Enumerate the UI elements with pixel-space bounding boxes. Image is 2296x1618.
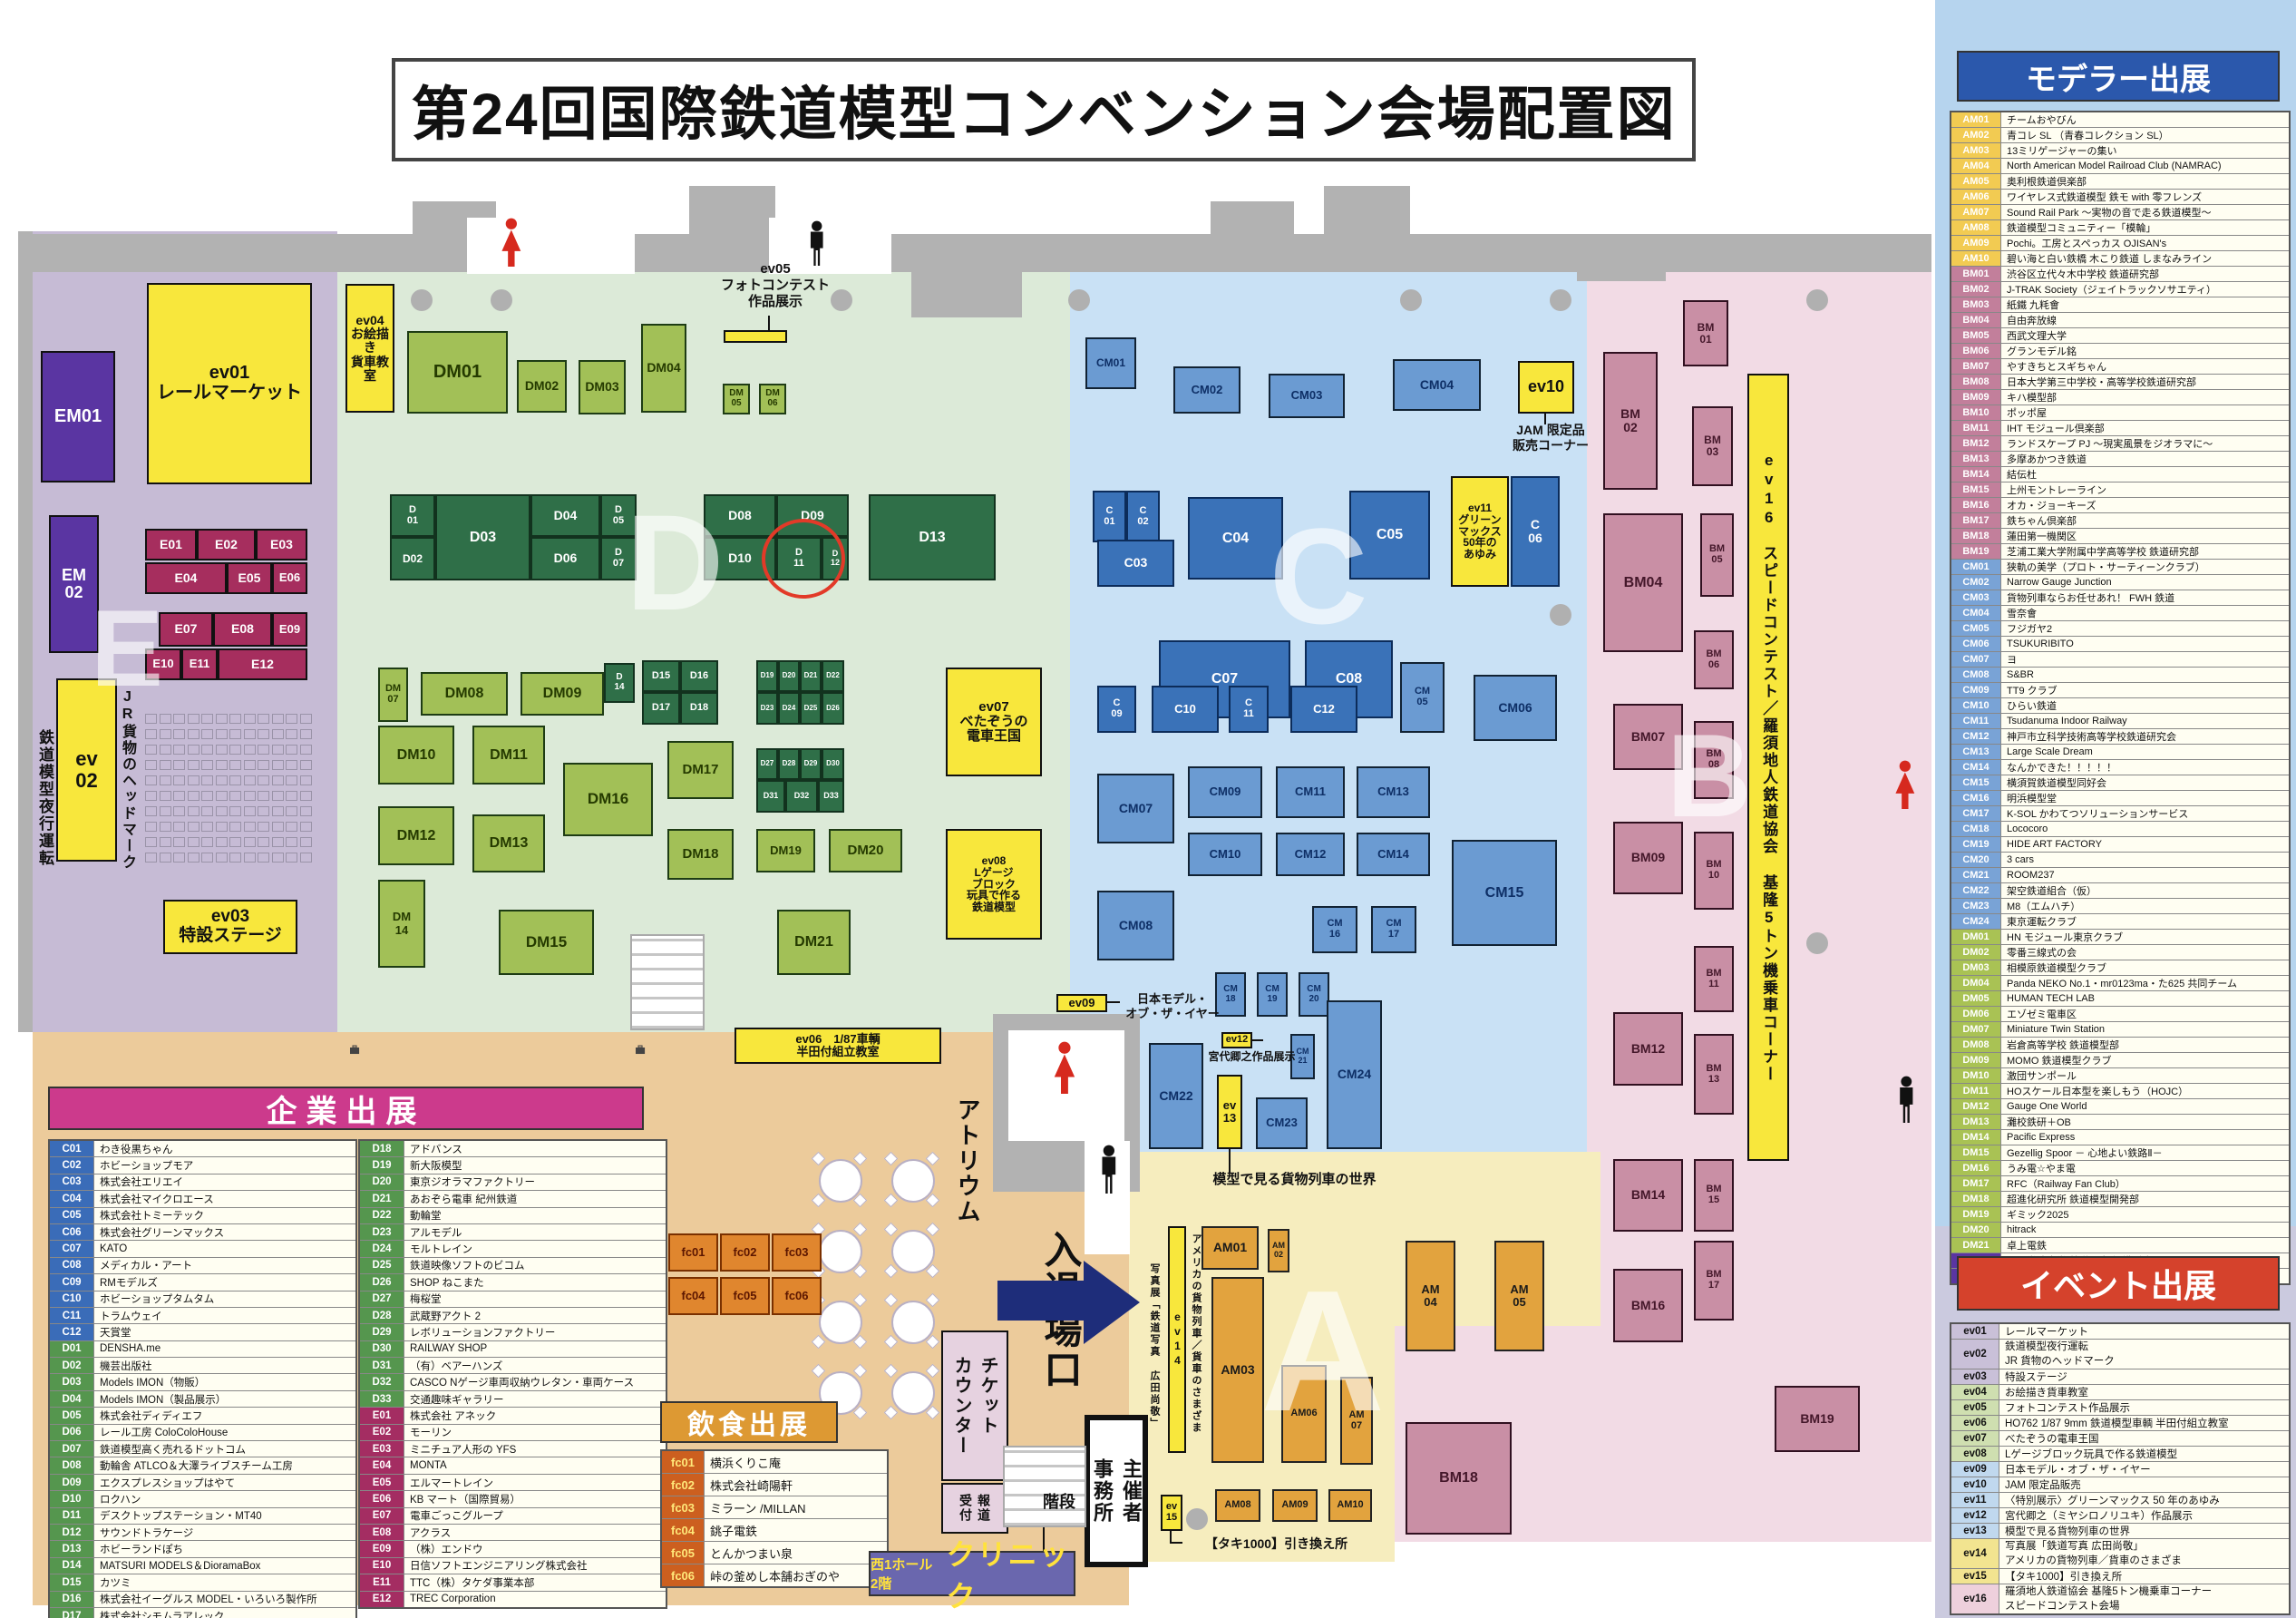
exhibitor-name: レールマーケット [1999,1324,2289,1339]
booth-E02: E02 [197,529,256,560]
legend-row-DM16: DM16うみ電☆やま電 [1951,1161,2289,1176]
exhibitor-name: アクラス [404,1525,666,1540]
woman-restroom-icon [498,218,525,267]
legend-row-AM01: AM01チームおやびん [1951,112,2289,128]
booth-code: D02 [50,1358,94,1373]
audience-seat [145,806,157,816]
booth-code: D28 [360,1308,404,1323]
booth-D18: D18 [680,692,718,725]
legend-row-CM04: CM04雪奈會 [1951,606,2289,621]
exhibitor-name: DENSHA.me [94,1341,355,1357]
booth-code: DM06 [1951,1007,2001,1021]
booth-code: C06 [50,1224,94,1240]
audience-seat [286,822,297,832]
legend-row-AM08: AM08鉄道模型コミュニティー「模輪」 [1951,220,2289,236]
booth-code: ev05 [1951,1400,1999,1415]
audience-seat [188,760,199,770]
booth-code: CM08 [1951,668,2001,682]
booth-DM12: DM12 [378,806,454,865]
booth-C04: C04 [1188,497,1283,580]
audience-seat [145,714,157,724]
exhibitor-name: J-TRAK Society（ジェイトラックソサエティ） [2001,282,2289,297]
audience-seat [244,714,256,724]
booth-BM18: BM18 [1406,1422,1512,1535]
audience-seat [244,837,256,847]
booth-BM17: BM 17 [1694,1241,1734,1321]
booth-EM02: EM 02 [49,515,99,653]
booth-DM14: DM 14 [378,880,425,968]
booth-code: AM01 [1951,112,2001,127]
exhibitor-name: エルマートレイン [404,1475,666,1490]
exhibitor-name: 横浜くりこ庵 [705,1451,887,1473]
legend-row-E12: E12TREC Corporation [360,1592,666,1607]
legend-row-BM12: BM12ランドスケープ PJ ～現実風景をジオラマに～ [1951,436,2289,452]
booth-code: D25 [360,1258,404,1273]
exhibitor-name: 日信ソフトエンジニアリング株式会社 [404,1558,666,1574]
map-label: ev05 フォトコンテスト 作品展示 [716,261,834,315]
exhibitor-name: ミニチュア人形の YFS [404,1441,666,1457]
clinic-banner: 西1ホール2階 クリニック [869,1551,1075,1596]
booth-AM03: AM03 [1211,1277,1264,1463]
booth-DM05: DM 05 [723,384,750,414]
booth-AM06: AM06 [1281,1365,1327,1463]
exhibitor-name: チームおやびん [2001,112,2289,127]
booth-code: C02 [50,1157,94,1173]
booth-DM17: DM17 [667,741,734,799]
locker-icon [349,1039,360,1059]
legend-row-C10: C10ホビーショップタムタム [50,1291,355,1308]
legend-row-E06: E06KB マート（国際貿易） [360,1491,666,1507]
exhibitor-name: Large Scale Dream [2001,745,2289,759]
booth-BM13: BM 13 [1694,1034,1734,1115]
atrium-table [891,1159,935,1203]
booth-code: BM10 [1951,405,2001,420]
booth-code: CM22 [1951,883,2001,898]
booth-code: E02 [360,1425,404,1440]
legend-row-E10: E10日信ソフトエンジニアリング株式会社 [360,1558,666,1574]
legend-row-DM18: DM18超進化研究所 鉄道模型開発部 [1951,1192,2289,1207]
booth-code: E09 [360,1541,404,1556]
booth-code: D23 [360,1224,404,1240]
legend-row-BM13: BM13多摩あかつき鉄道 [1951,452,2289,467]
exhibitor-name: 株式会社シモムラアレック [94,1608,355,1618]
exhibitor-name: 岩倉高等学校 鉄道模型部 [2001,1038,2289,1052]
exhibitor-name: 渋谷区立代々木中学校 鉄道研究部 [2001,267,2289,281]
exhibitor-name: なんかできた！！！！！ [2001,760,2289,775]
exhibitor-name: 卓上電鉄 [2001,1238,2289,1252]
booth-code: ev09 [1951,1462,1999,1477]
booth-code: D09 [50,1475,94,1490]
booth-fc03: fc03 [772,1233,822,1272]
booth-code: D32 [360,1374,404,1389]
booth-ev06: ev06 1/87車輌 半田付組立教室 [735,1028,941,1064]
pillar [1550,604,1571,626]
audience-seat [173,791,185,801]
press-desk-label: 報道 受付 [957,1494,993,1523]
legend-row-CM03: CM03貨物列車ならお任せあれ！ FWH 鉄道 [1951,590,2289,606]
audience-seat [244,853,256,863]
booth-ev01: ev01 レールマーケット [147,283,312,484]
booth-DM20: DM20 [829,829,902,872]
booth-C06: C 06 [1511,476,1560,587]
audience-seat [201,853,213,863]
exhibitor-name: 電車ごっこグループ [404,1508,666,1524]
exhibitor-name: ギミック2025 [2001,1207,2289,1222]
booth-code: DM03 [1951,960,2001,975]
booth-DM13: DM13 [472,814,545,872]
exhibitor-name: 〈特別展示〉グリーンマックス 50 年のあゆみ [1999,1493,2289,1507]
legend-row-CM18: CM18Lococoro [1951,822,2289,837]
exhibitor-name: 機芸出版社 [94,1358,355,1373]
booth-fc06: fc06 [772,1277,822,1315]
exhibitor-name: K-SOL かわてつソリューションサービス [2001,806,2289,821]
booth-code: CM09 [1951,683,2001,697]
booth-C05: C05 [1349,491,1430,580]
booth-code: AM10 [1951,251,2001,266]
woman-restroom-icon [1050,1041,1079,1094]
booth-CM24: CM24 [1327,1000,1382,1149]
legend-row-D17: D17株式会社シモムラアレック [50,1608,355,1618]
legend-row-D15: D15カツミ [50,1574,355,1591]
booth-code: E06 [360,1491,404,1506]
atrium-table [891,1230,935,1273]
booth-D01: D 01 [390,494,435,537]
audience-seat [286,791,297,801]
exhibitor-name: Gezellig Spoor － 心地よい鉄路Ⅱ－ [2001,1145,2289,1160]
exhibitor-name: 鉄ちゃん倶楽部 [2001,513,2289,528]
booth-BM08: BM 08 [1694,721,1734,799]
audience-seat [258,714,269,724]
booth-code: BM12 [1951,436,2001,451]
booth-code: D24 [360,1241,404,1256]
booth-code: AM08 [1951,220,2001,235]
booth-DM01: DM01 [407,331,508,414]
pointer-line [1170,1542,1182,1544]
booth-D15: D15 [642,660,680,692]
legend-row-AM04: AM04North American Model Railroad Club (… [1951,159,2289,174]
map-label: JAM 限定品 販売コーナー [1492,423,1610,455]
booth-D19: D19 [756,660,778,692]
legend-row-CM01: CM01狭軌の美学（プロト・サーティーンクラブ） [1951,560,2289,575]
legend-row-DM17: DM17RFC（Railway Fan Club） [1951,1176,2289,1192]
exhibitor-name: Narrow Gauge Junction [2001,575,2289,590]
exhibitor-name: （有）ベアーハンズ [404,1358,666,1373]
booth-C10: C10 [1152,686,1219,733]
legend-row-E08: E08アクラス [360,1525,666,1541]
booth-code: C01 [50,1141,94,1156]
booth-D25: D25 [800,692,822,725]
booth-code: E12 [360,1592,404,1607]
legend-row-AM06: AM06ワイヤレス式鉄道模型 鉄モ with 零フレンズ [1951,190,2289,205]
booth-DM04: DM04 [641,324,686,413]
booth-DM09: DM09 [520,672,604,716]
legend-row-DM10: DM10激団サンポール [1951,1068,2289,1084]
exhibitor-name: トラムウェイ [94,1308,355,1323]
booth-CM11: CM11 [1276,766,1345,818]
booth-CM15: CM15 [1452,840,1557,946]
booth-code: BM17 [1951,513,2001,528]
booth-code: E11 [360,1574,404,1590]
booth-code: DM15 [1951,1145,2001,1160]
exhibitor-name: HUMAN TECH LAB [2001,991,2289,1006]
booth-code: CM24 [1951,914,2001,929]
booth-code: CM04 [1951,606,2001,620]
booth-code: CM02 [1951,575,2001,590]
exhibitor-name: （株）エンドウ [404,1541,666,1556]
booth-ev08: ev08 Lゲージ ブロック 玩具で作る 鉄道模型 [946,829,1042,940]
legend-row-fc06: fc06峠の釜めし本舗おぎのや [662,1564,887,1586]
booth-CM03: CM03 [1269,374,1345,418]
booth-code: D26 [360,1274,404,1290]
legend-row-ev09: ev09日本モデル・オブ・ザ・イヤー [1951,1462,2289,1477]
booth-CM05: CM 05 [1400,662,1445,733]
booth-AM10: AM10 [1328,1489,1372,1522]
exhibitor-name: 動輪堂 [404,1208,666,1223]
exhibitor-name: エクスプレスショップはやて [94,1475,355,1490]
exhibitor-name: Models IMON（物販） [94,1374,355,1389]
exhibitor-name: べたぞうの電車王国 [1999,1431,2289,1446]
booth-code: D21 [360,1191,404,1206]
legend-row-C03: C03株式会社エリエイ [50,1175,355,1191]
booth-code: D08 [50,1457,94,1473]
legend-row-D14: D14MATSURI MODELS＆DioramaBox [50,1558,355,1574]
audience-seat [229,853,241,863]
exhibitor-name: 特設ステージ [1999,1369,2289,1384]
page-title: 第24回国際鉄道模型コンベンション会場配置図 [392,58,1696,161]
legend-row-fc02: fc02株式会社崎陽軒 [662,1474,887,1496]
booth-code: DM13 [1951,1115,2001,1129]
exhibitor-name: SHOP ねこまた [404,1274,666,1290]
audience-seat [201,806,213,816]
audience-seat [286,745,297,755]
exhibitor-name: ホビーショップタムタム [94,1291,355,1307]
booth-fc01: fc01 [668,1233,718,1272]
audience-seat [244,791,256,801]
booth-code: DM11 [1951,1084,2001,1098]
booth-code: E01 [360,1408,404,1423]
legend-row-ev14: ev14写真展「鉄道写真 広田尚敬」 アメリカの貨物列車／貨車のさまざま [1951,1539,2289,1569]
legend-row-CM21: CM21ROOM237 [1951,868,2289,883]
exhibitor-name: ランドスケープ PJ ～現実風景をジオラマに～ [2001,436,2289,451]
booth-D07: D 07 [600,537,637,580]
map-label: 模型で見る貨物列車の世界 [1183,1172,1406,1190]
exhibitor-name: 動輪舎 ATLCO＆大澤ライブスチーム工房 [94,1457,355,1473]
clinic-floor-label: 西1ホール2階 [871,1555,939,1593]
exhibitor-name: オカ・ジョーキーズ [2001,498,2289,512]
atrium-table [819,1230,862,1273]
exhibitor-name: 碧い海と白い鉄橋 木こり鉄道 しまなみライン [2001,251,2289,266]
audience-seat [300,806,312,816]
booth-CM02: CM02 [1173,366,1240,414]
booth-C11: C 11 [1229,686,1269,733]
booth-DM21: DM21 [777,910,851,975]
booth-code: DM05 [1951,991,2001,1006]
legend-row-D21: D21あおぞら電車 紀州鉄道 [360,1191,666,1207]
exhibitor-name: Pacific Express [2001,1130,2289,1145]
audience-seat [286,714,297,724]
booth-code: ev02 [1951,1340,1999,1369]
audience-seat [300,745,312,755]
booth-code: D03 [50,1374,94,1389]
booth-D23: D23 [756,692,778,725]
exhibitor-name: キハ模型部 [2001,390,2289,404]
exhibitor-name: 横須賀鉄道模型同好会 [2001,775,2289,790]
booth-C01: C 01 [1093,491,1126,542]
booth-DM15: DM15 [499,910,594,975]
pillar [1400,289,1422,311]
booth-BM09: BM09 [1613,822,1683,894]
legend-row-CM07: CM07ヨ [1951,652,2289,668]
booth-code: AM07 [1951,205,2001,219]
legend-row-ev03: ev03特設ステージ [1951,1369,2289,1385]
audience-seat [272,745,284,755]
booth-code: DM18 [1951,1192,2001,1206]
legend-row-D18: D18アドバンス [360,1141,666,1157]
legend-row-DM15: DM15Gezellig Spoor － 心地よい鉄路Ⅱ－ [1951,1145,2289,1161]
booth-E03: E03 [256,529,307,560]
booth-code: D07 [50,1441,94,1457]
audience-seat [145,791,157,801]
pillar [1550,289,1571,311]
booth-D14: D 14 [604,663,635,703]
audience-seat [160,837,171,847]
modeler-table: AM01チームおやびんAM02青コレ SL （青春コレクション SL）AM031… [1950,111,2291,1285]
audience-seat [216,714,228,724]
exhibitor-name: North American Model Railroad Club (NAMR… [2001,159,2289,173]
audience-seat [300,729,312,739]
booth-code: D31 [360,1358,404,1373]
exhibitor-name: 鉄道模型コミュニティー「模輪」 [2001,220,2289,235]
exhibitor-name: HO762 1/87 9mm 鉄道模型車輌 半田付組立教室 [1999,1416,2289,1430]
exhibitor-name: 交通趣味ギャラリー [404,1391,666,1407]
booth-DM10: DM10 [378,726,454,785]
booth-code: D16 [50,1592,94,1607]
audience-seat [244,822,256,832]
exhibitor-name: モルトレイン [404,1241,666,1256]
man-restroom-icon [1893,1076,1920,1123]
audience-seat [272,714,284,724]
exhibitor-name: Sound Rail Park ～実物の音で走る鉄道模型～ [2001,205,2289,219]
booth-D28: D28 [778,748,800,780]
booth-code: ev15 [1951,1569,1999,1584]
exhibitor-name: 株式会社崎陽軒 [705,1474,887,1496]
booth-code: BM11 [1951,421,2001,435]
booth-code: BM18 [1951,529,2001,543]
legend-row-DM09: DM09MOMO 鉄道模型クラブ [1951,1053,2289,1068]
exhibitor-name: 架空鉄道組合（仮） [2001,883,2289,898]
map-label: JR貨物のヘッドマーク [112,673,136,886]
legend-row-AM07: AM07Sound Rail Park ～実物の音で走る鉄道模型～ [1951,205,2289,220]
pillar [491,289,512,311]
legend-row-E02: E02モーリン [360,1425,666,1441]
booth-code: AM05 [1951,174,2001,189]
legend-row-BM15: BM15上州モントレーライン [1951,482,2289,498]
booth-code: CM07 [1951,652,2001,667]
legend-row-D24: D24モルトレイン [360,1241,666,1257]
legend-row-CM22: CM22架空鉄道組合（仮） [1951,883,2289,899]
legend-row-CM11: CM11Tsudanuma Indoor Railway [1951,714,2289,729]
legend-row-ev13: ev13模型で見る貨物列車の世界 [1951,1524,2289,1539]
legend-row-BM03: BM03紙鐵 九粍會 [1951,297,2289,313]
audience-seat [272,775,284,785]
audience-seat [216,775,228,785]
legend-row-ev06: ev06HO762 1/87 9mm 鉄道模型車輌 半田付組立教室 [1951,1416,2289,1431]
exhibitor-name: ポッポ屋 [2001,405,2289,420]
legend-row-D03: D03Models IMON（物販） [50,1374,355,1390]
audience-seat [145,775,157,785]
audience-seat [229,806,241,816]
legend-row-CM24: CM24東京運転クラブ [1951,914,2289,930]
exhibitor-name: フジガヤ2 [2001,621,2289,636]
booth-code: C03 [50,1175,94,1190]
pillar [411,289,433,311]
booth-D08: D08 [704,494,776,537]
legend-row-CM20: CM203 cars [1951,853,2289,868]
booth-D16: D16 [680,660,718,692]
audience-seat [216,822,228,832]
atrium-table [819,1159,862,1203]
stairs-d [630,934,705,1030]
booth-BM11: BM 11 [1694,946,1734,1012]
legend-row-BM01: BM01渋谷区立代々木中学校 鉄道研究部 [1951,267,2289,282]
exhibitor-name: 東京ジオラマファクトリー [404,1175,666,1190]
legend-row-CM17: CM17K-SOL かわてつソリューションサービス [1951,806,2289,822]
booth-C12: C12 [1290,686,1357,733]
audience-seat [300,853,312,863]
map-label: 【タキ1000】引き換え所 [1179,1536,1374,1553]
legend-row-C08: C08メディカル・アート [50,1258,355,1274]
exhibitor-name: お絵描き貨車教室 [1999,1385,2289,1399]
legend-row-CM19: CM19HIDE ART FACTORY [1951,837,2289,853]
woman-restroom-icon [1892,760,1919,809]
exhibitor-name: Panda NEKO No.1・mr0123ma・た625 共同チーム [2001,976,2289,990]
audience-seat [286,760,297,770]
man-restroom-icon [804,220,830,266]
booth-E07: E07 [159,612,213,647]
booth-D29: D29 [800,748,822,780]
pillar [1068,289,1090,311]
exhibitor-name: 灘校鉄研＋OB [2001,1115,2289,1129]
booth-code: BM05 [1951,328,2001,343]
audience-seat [188,853,199,863]
pointer-line [1229,1149,1231,1173]
wall-segment [1324,186,1410,236]
booth-code: C07 [50,1241,94,1256]
legend-row-DM20: DM20hitrack [1951,1223,2289,1238]
exhibitor-name: レボリューションファクトリー [404,1324,666,1340]
exhibitor-name: 宮代卿之（ミヤシロノリユキ）作品展示 [1999,1508,2289,1523]
exhibitor-name: 上州モントレーライン [2001,482,2289,497]
booth-ev10: ev10 [1518,361,1574,414]
audience-seat [272,729,284,739]
booth-code: C09 [50,1274,94,1290]
audience-seat [160,729,171,739]
audience-seat [229,729,241,739]
booth-code: D17 [50,1608,94,1618]
legend-row-ev01: ev01レールマーケット [1951,1324,2289,1340]
booth-code: DM01 [1951,930,2001,944]
booth-CM04: CM04 [1393,359,1481,411]
booth-CM19: CM 19 [1257,972,1288,1017]
booth-code: E10 [360,1558,404,1574]
booth-DM08: DM08 [421,672,508,716]
legend-row-C01: C01わき役黒ちゃん [50,1141,355,1157]
booth-code: AM03 [1951,143,2001,158]
legend-row-DM04: DM04Panda NEKO No.1・mr0123ma・た625 共同チーム [1951,976,2289,991]
legend-row-BM19: BM19芝浦工業大学附属中学高等学校 鉄道研究部 [1951,544,2289,560]
legend-row-CM12: CM12神戸市立科学技術高等学校鉄道研究会 [1951,729,2289,745]
pillar [1806,289,1828,311]
